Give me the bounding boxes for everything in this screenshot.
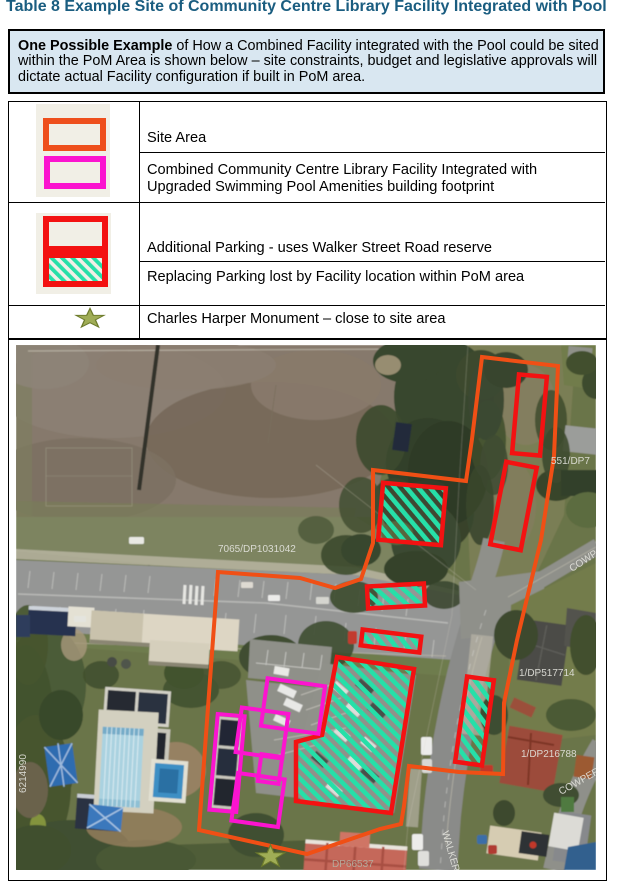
- svg-text:1/DP517714: 1/DP517714: [519, 668, 575, 679]
- svg-text:6214990: 6214990: [18, 754, 29, 793]
- svg-text:DP66537: DP66537: [332, 859, 374, 870]
- svg-text:7065/DP1031042: 7065/DP1031042: [218, 544, 296, 555]
- svg-text:551/DP7: 551/DP7: [551, 456, 590, 467]
- svg-text:1/DP216788: 1/DP216788: [521, 749, 577, 760]
